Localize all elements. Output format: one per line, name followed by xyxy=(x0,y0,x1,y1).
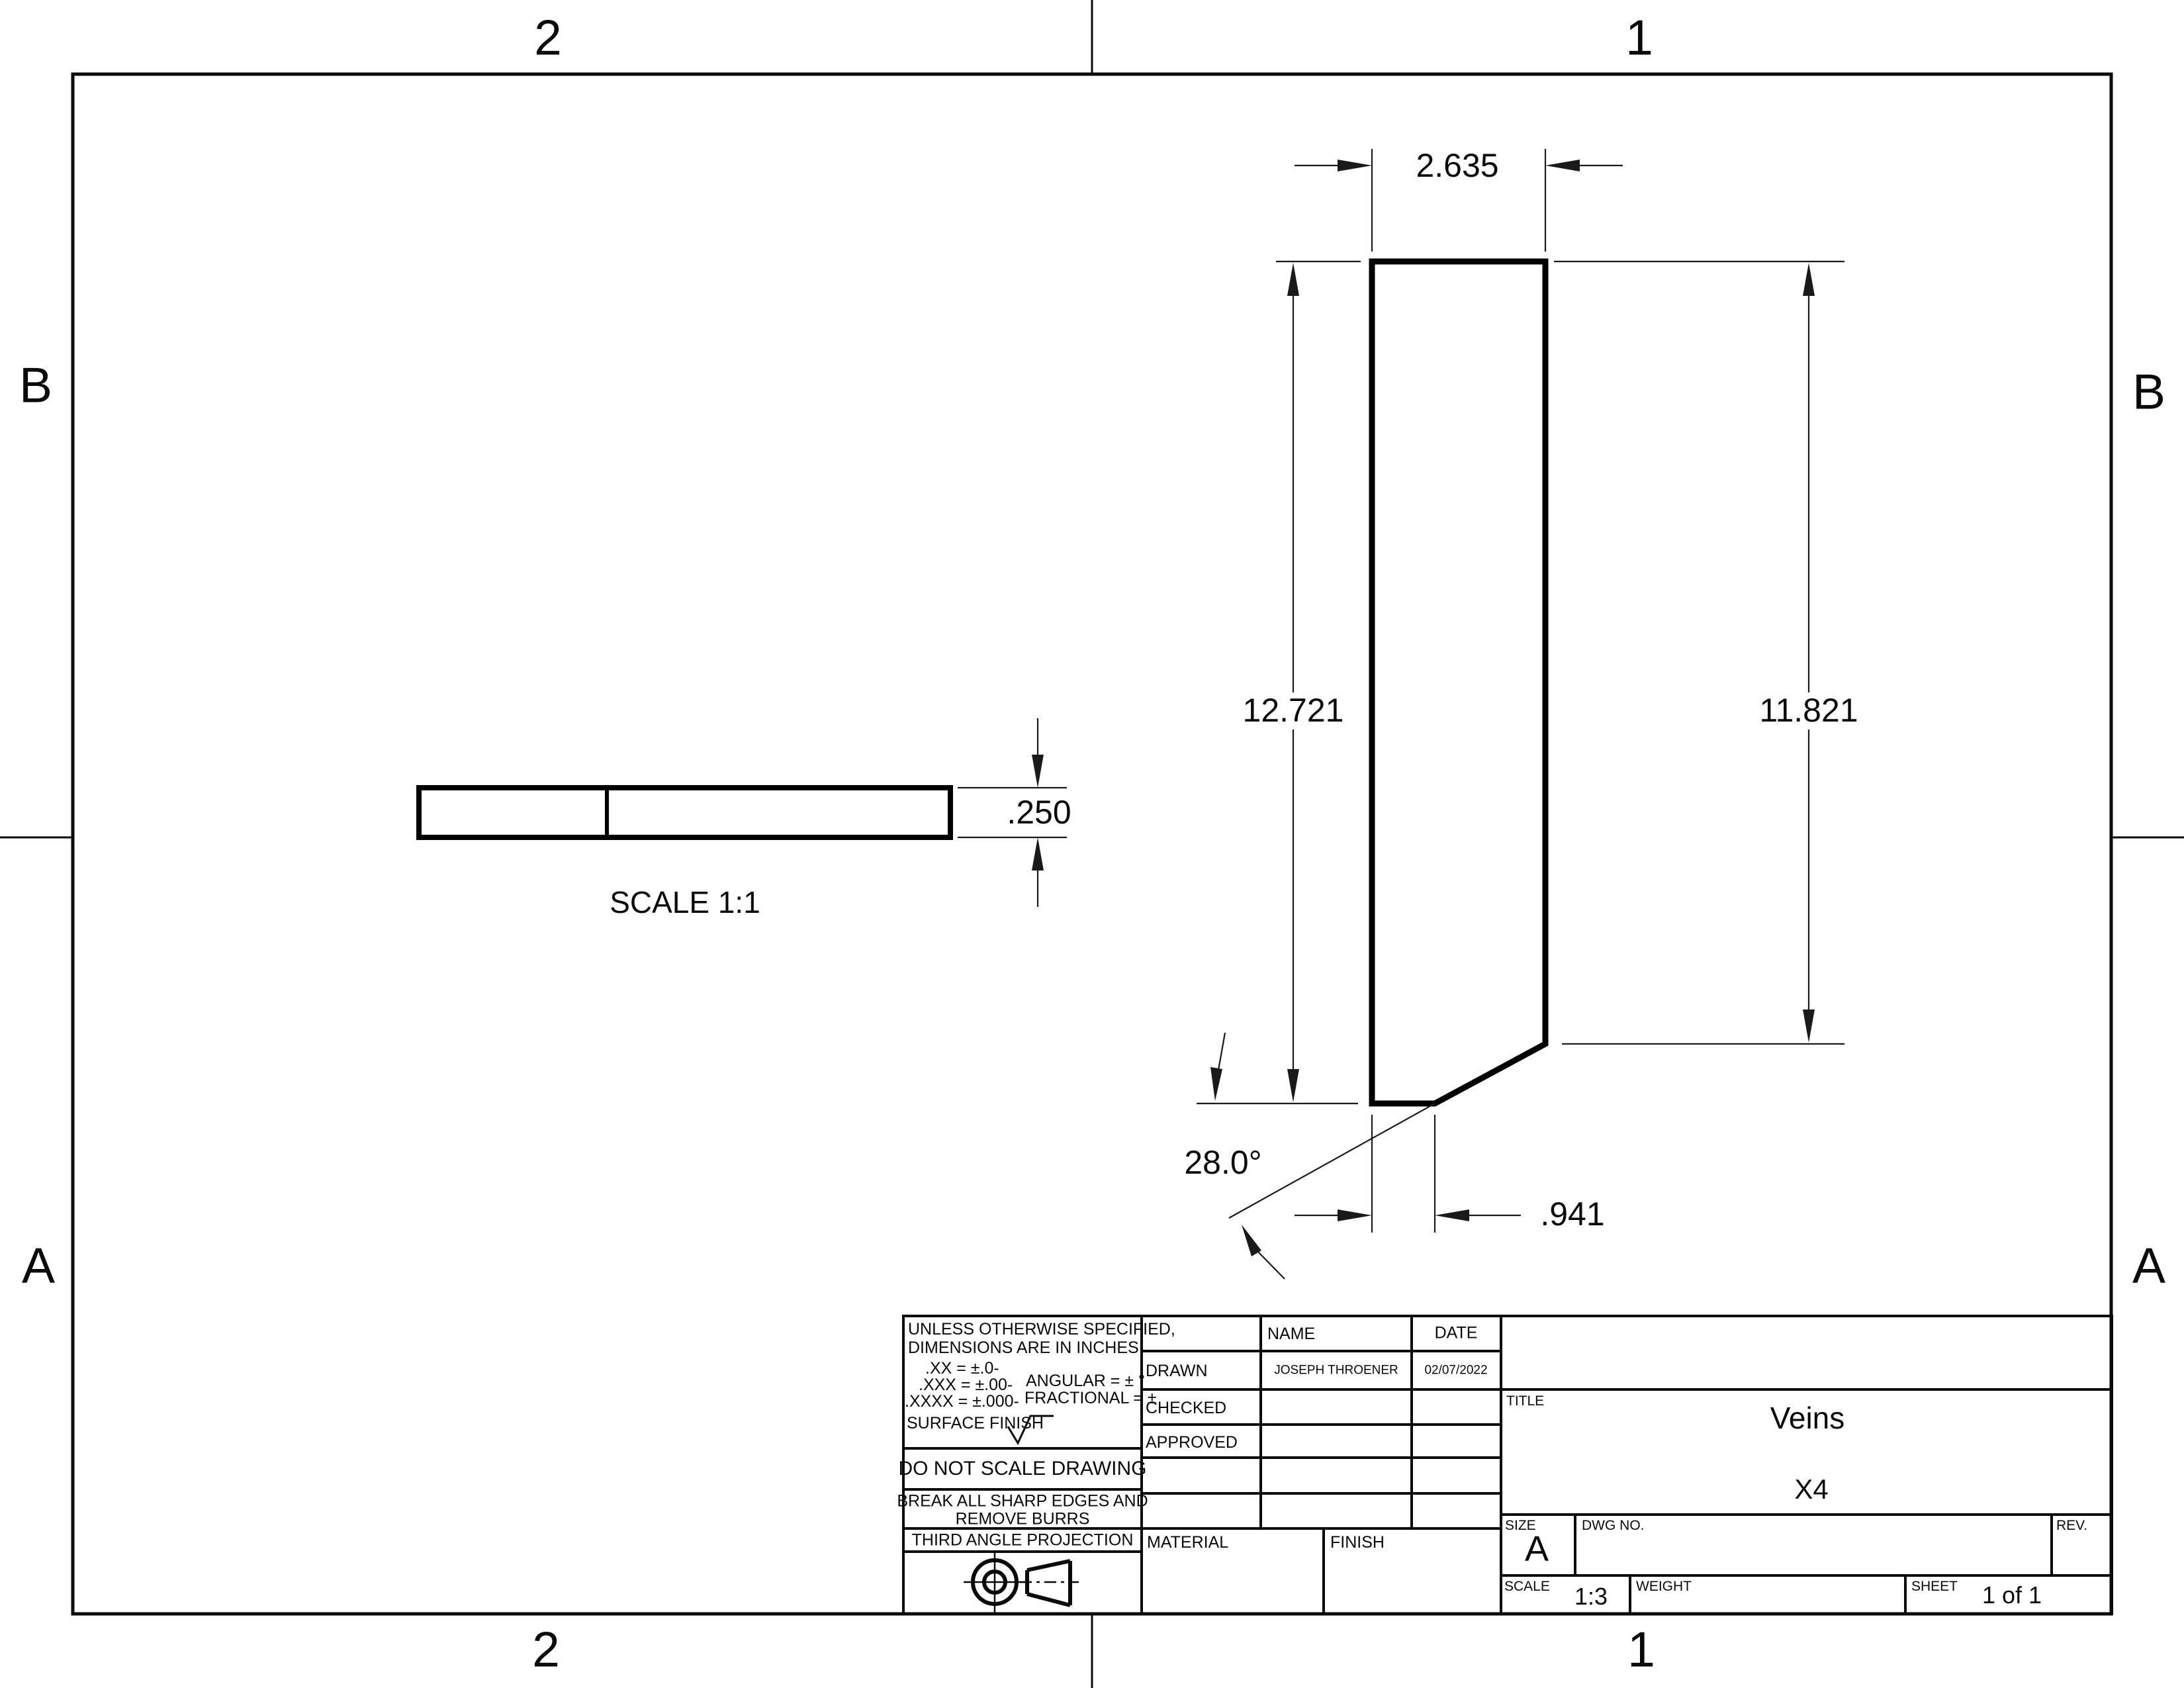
zone-label-right-lower: A xyxy=(2132,1241,2165,1291)
tb-header-date: DATE xyxy=(1435,1325,1478,1342)
zone-label-bottom-right: 1 xyxy=(1627,1625,1655,1675)
tb-weight-label: WEIGHT xyxy=(1636,1579,1692,1593)
front-view-outline xyxy=(1372,261,1545,1103)
tb-do-not-scale: DO NOT SCALE DRAWING xyxy=(898,1459,1146,1479)
zone-label-left-lower: A xyxy=(22,1241,55,1291)
zone-label-left-upper: B xyxy=(19,361,52,410)
tb-tolerance-angular: ANGULAR = ± ° xyxy=(1026,1373,1145,1389)
third-angle-projection-icon xyxy=(964,1553,1079,1613)
tb-tolerance-xxxx: .XXXX = ±.000- xyxy=(905,1393,1019,1410)
tb-break-edges-line2: REMOVE BURRS xyxy=(956,1511,1090,1528)
drawing-linework xyxy=(0,0,2184,1688)
zone-label-top-right: 1 xyxy=(1625,13,1653,63)
tb-row-drawn-date: 02/07/2022 xyxy=(1424,1364,1487,1377)
tb-title-value: Veins xyxy=(1770,1403,1845,1433)
dim-height-11821 xyxy=(1554,261,1844,1044)
dim-text-width: 2.635 xyxy=(1416,149,1498,182)
tb-sheet-label: SHEET xyxy=(1911,1579,1958,1593)
tb-tolerance-fractional: FRACTIONAL = ± xyxy=(1024,1390,1157,1407)
tb-material-label: MATERIAL xyxy=(1147,1534,1228,1551)
zone-label-bottom-left: 2 xyxy=(532,1625,560,1675)
tb-scale-label: SCALE xyxy=(1504,1579,1550,1593)
dim-text-left-height: 12.721 xyxy=(1243,694,1344,727)
tb-row-drawn-name: JOSEPH THROENER xyxy=(1274,1364,1398,1377)
dim-text-right-height: 11.821 xyxy=(1759,694,1858,727)
zone-label-right-upper: B xyxy=(2132,367,2165,417)
tb-subtitle-value: X4 xyxy=(1794,1476,1828,1503)
tb-break-edges-line1: BREAK ALL SHARP EDGES AND xyxy=(897,1493,1148,1510)
tb-row-checked-label: CHECKED xyxy=(1146,1400,1226,1417)
tb-title-label: TITLE xyxy=(1506,1394,1544,1408)
tb-tolerance-xxx: .XXX = ±.00- xyxy=(919,1377,1013,1393)
tb-note-line2: DIMENSIONS ARE IN INCHES xyxy=(908,1340,1139,1356)
tb-size-value: A xyxy=(1525,1531,1549,1567)
dim-text-bottom-width: .941 xyxy=(1540,1197,1604,1231)
dim-bottom-941 xyxy=(1295,1115,1521,1233)
dim-text-angle: 28.0° xyxy=(1184,1146,1261,1179)
drawing-sheet: 2 1 2 1 B A B A 2.635 12.721 11.821 28.0… xyxy=(0,0,2184,1688)
side-view-outline xyxy=(419,788,950,837)
tb-projection-label: THIRD ANGLE PROJECTION xyxy=(912,1532,1134,1549)
sheet-frame xyxy=(0,0,2184,1688)
tb-rev-label: REV. xyxy=(2056,1519,2087,1532)
tb-surface-finish-label: SURFACE FINISH xyxy=(907,1415,1044,1432)
side-view-scale-note: SCALE 1:1 xyxy=(610,887,760,917)
zone-label-top-left: 2 xyxy=(534,13,562,63)
tb-scale-value: 1:3 xyxy=(1574,1585,1608,1609)
tb-row-approved-label: APPROVED xyxy=(1146,1434,1238,1451)
dim-text-thickness: .250 xyxy=(1007,796,1071,829)
tb-tolerance-xx: .XX = ±.0- xyxy=(925,1360,999,1377)
tb-header-name: NAME xyxy=(1267,1326,1315,1342)
tb-row-drawn-label: DRAWN xyxy=(1146,1363,1208,1380)
tb-finish-label: FINISH xyxy=(1330,1534,1385,1551)
tb-note-line1: UNLESS OTHERWISE SPECIFIED, xyxy=(908,1321,1175,1338)
tb-dwg-no-label: DWG NO. xyxy=(1582,1519,1645,1532)
dim-height-12721 xyxy=(1197,261,1361,1103)
tb-sheet-value: 1 of 1 xyxy=(1982,1583,2042,1607)
